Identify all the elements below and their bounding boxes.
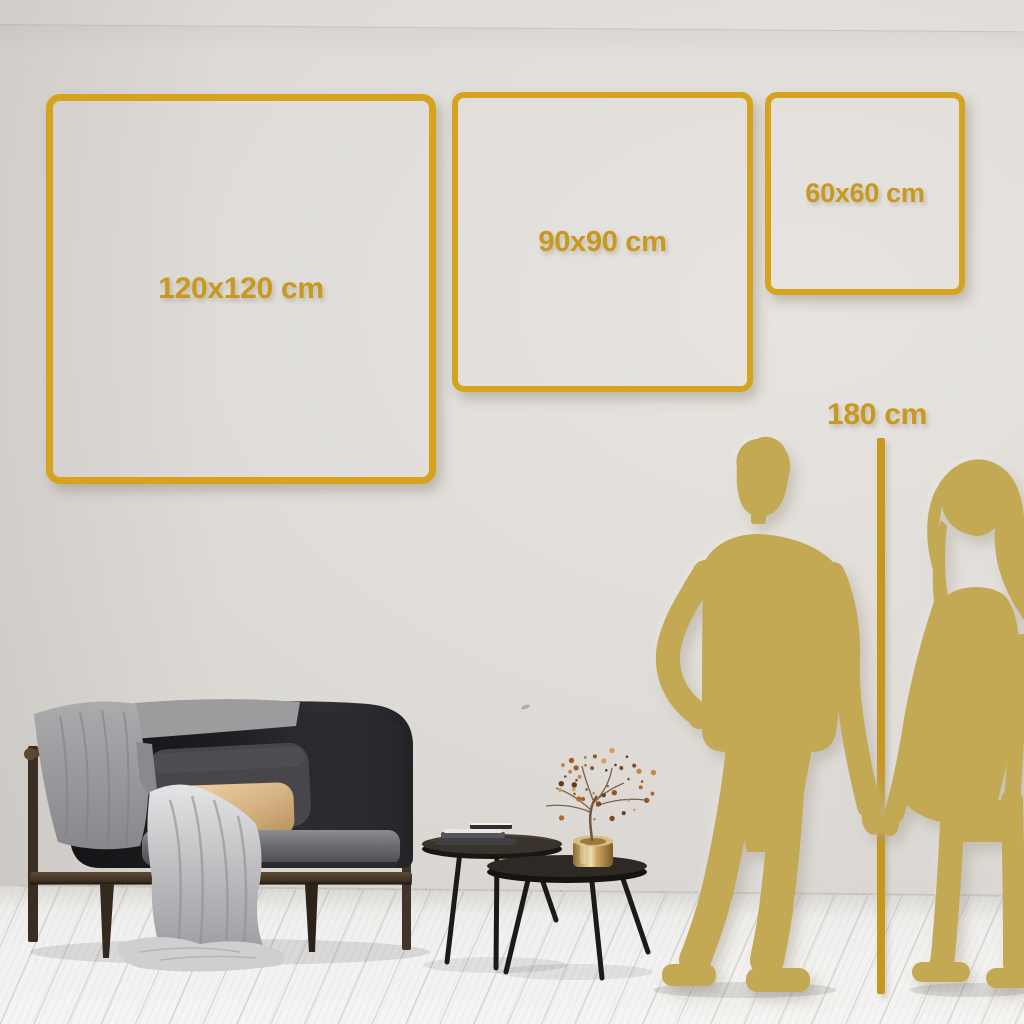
height-reference-label: 180 cm xyxy=(796,398,958,432)
size-frame-90: 90x90 cm xyxy=(452,92,753,392)
couple-silhouettes xyxy=(610,428,1024,1014)
woman-silhouette xyxy=(881,459,1024,988)
size-frame-120-label: 120x120 cm xyxy=(158,272,324,306)
size-frame-120: 120x120 cm xyxy=(46,94,436,484)
size-guide-scene: 120x120 cm 90x90 cm 60x60 cm 180 cm xyxy=(0,0,1024,1024)
ceiling-line xyxy=(0,24,1024,79)
man-silhouette xyxy=(662,437,885,992)
books-illustration xyxy=(436,823,516,845)
size-frame-90-label: 90x90 cm xyxy=(538,226,666,259)
size-frame-60-label: 60x60 cm xyxy=(805,178,924,209)
size-frame-60: 60x60 cm xyxy=(765,92,965,295)
sofa-illustration xyxy=(15,690,475,980)
